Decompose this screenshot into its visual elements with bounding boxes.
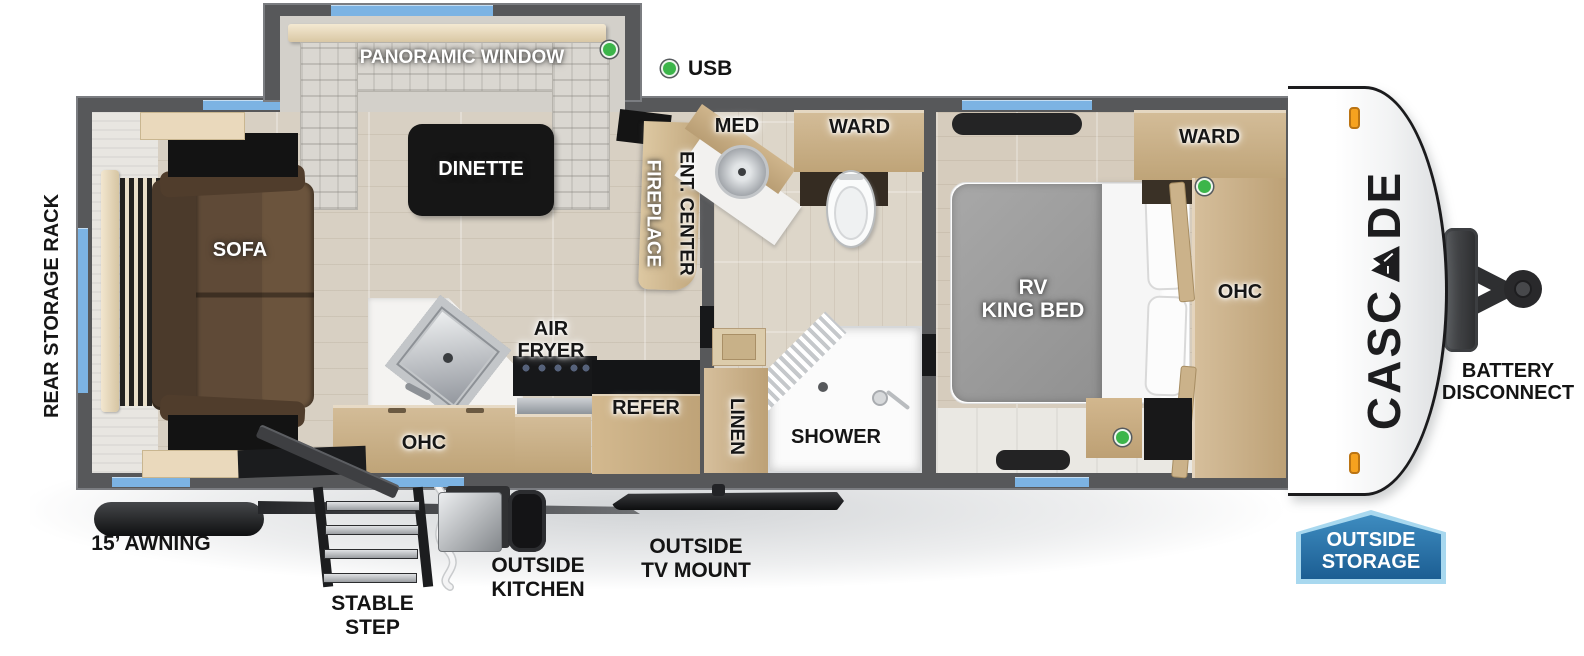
outside-storage-line2: STORAGE: [1322, 551, 1421, 573]
brand-prefix: CASC: [1357, 288, 1411, 430]
label-ohc-bedroom: OHC: [1210, 281, 1270, 303]
sofa-back: [152, 180, 198, 410]
hitch-coupler-knob: [1514, 280, 1532, 298]
stable-step: [318, 487, 430, 593]
label-outside-tv-mount: OUTSIDE TV MOUNT: [607, 535, 785, 582]
usb-dot-nightstand: [1114, 429, 1131, 446]
label-rv-king-bed: RV KING BED: [978, 276, 1088, 322]
label-tv-line1: OUTSIDE: [607, 535, 785, 559]
label-rv-king-bed-line2: KING BED: [978, 299, 1088, 322]
label-ward-bedroom: WARD: [1162, 126, 1257, 148]
label-air-fryer-line1: AIR: [505, 318, 597, 340]
toilet-hinge: [838, 174, 864, 180]
label-rear-storage-rack: REAR STORAGE RACK: [28, 168, 76, 443]
outside-storage-line1: OUTSIDE: [1327, 529, 1416, 551]
sofa-seats: [196, 178, 264, 412]
label-battery-line1: BATTERY: [1428, 360, 1584, 382]
tv-mount-stub: [712, 484, 725, 496]
label-med: MED: [706, 115, 768, 137]
ohc-handle-right: [466, 408, 484, 413]
label-sofa: SOFA: [195, 239, 285, 261]
slideout-window: [331, 5, 493, 16]
stove-burners: [518, 362, 592, 375]
usb-dot-dinette: [601, 41, 618, 58]
refer-top: [592, 360, 700, 394]
brand-logo: CASC DE: [1322, 138, 1446, 462]
label-battery-disconnect: BATTERY DISCONNECT: [1428, 360, 1584, 405]
bedroom-door-panel: [922, 334, 936, 376]
brand-suffix: DE: [1357, 170, 1411, 240]
bedroom-bench: [996, 450, 1070, 470]
label-ent-center: ENT. CENTER: [662, 142, 708, 284]
bath-sink-drain: [738, 168, 746, 176]
shower-drain: [818, 382, 828, 392]
window-top-rear: [203, 100, 283, 110]
floorplan-canvas: CASC DE: [0, 0, 1584, 656]
oven-front: [517, 398, 593, 414]
battery-box: [1444, 228, 1478, 352]
sofa-front-cushions: [262, 182, 314, 408]
outside-storage-badge-inner: OUTSIDE STORAGE: [1301, 515, 1441, 579]
label-air-fryer-line2: FRYER: [505, 340, 597, 362]
nightstand-wood: [1086, 398, 1142, 458]
outside-kitchen-case: [508, 490, 546, 552]
storage-rack-rail: [101, 170, 119, 412]
label-ohc-kitchen: OHC: [394, 432, 454, 454]
label-refer: REFER: [596, 397, 696, 419]
label-battery-line2: DISCONNECT: [1428, 382, 1584, 404]
label-panoramic-window: PANORAMIC WINDOW: [337, 48, 587, 69]
sink-drain: [443, 353, 453, 363]
wall-bath-bedroom-top: [922, 112, 936, 290]
window-top-bedroom: [962, 100, 1092, 110]
bedroom-top-shelf: [952, 113, 1082, 135]
clearance-light-top: [1349, 107, 1360, 129]
label-stable-step: STABLE STEP: [305, 592, 440, 639]
bedroom-ohc-cabinet: [1192, 178, 1286, 478]
label-shower: SHOWER: [786, 426, 886, 448]
toilet-lid: [834, 186, 868, 240]
nightstand-black: [1144, 398, 1192, 460]
label-outside-kitchen: OUTSIDE KITCHEN: [448, 554, 628, 601]
window-rear-wall: [78, 228, 88, 393]
usb-dot-bedroom-top: [1196, 178, 1213, 195]
window-valance: [288, 24, 606, 42]
label-usb: USB: [688, 57, 758, 81]
label-awning: 15’ AWNING: [86, 532, 216, 556]
label-rv-king-bed-line1: RV: [978, 276, 1088, 299]
kitchen-lower-cabinet: [515, 414, 591, 473]
ohc-handle-left: [388, 408, 406, 413]
window-bottom-rear: [112, 477, 190, 487]
outside-kitchen-griddle: [438, 492, 502, 552]
usb-dot-legend: [661, 60, 678, 77]
label-tv-line2: TV MOUNT: [607, 559, 785, 583]
end-table-top: [140, 112, 245, 140]
label-ward-bath: WARD: [812, 116, 907, 138]
label-air-fryer: AIR FRYER: [505, 318, 597, 362]
linen-counter-inner: [722, 334, 756, 360]
label-dinette: DINETTE: [418, 158, 544, 180]
end-table-bottom: [142, 450, 244, 478]
awning-roller: [94, 502, 264, 536]
window-bottom-bedroom: [1015, 477, 1089, 487]
label-linen: LINEN: [713, 386, 757, 466]
mountain-a-icon: [1366, 243, 1402, 285]
tv-mount-bar: [612, 492, 844, 510]
